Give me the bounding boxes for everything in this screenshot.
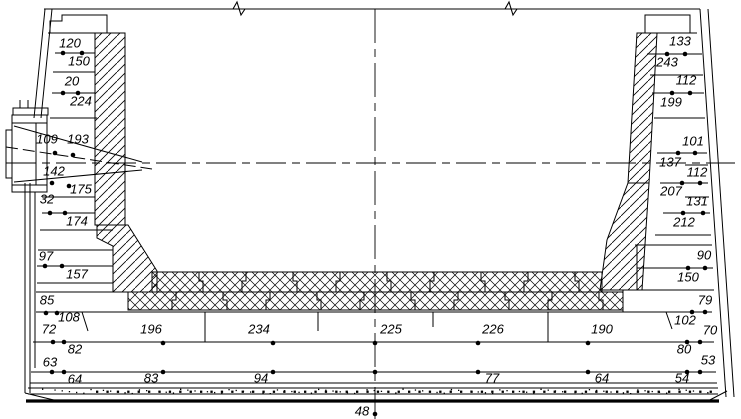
stipple-speck: [659, 392, 660, 393]
measurement-label: 97: [39, 248, 54, 263]
stipple-speck: [76, 392, 77, 393]
measurement-label: 83: [144, 370, 159, 385]
measurement-point-dot: [586, 341, 591, 346]
stipple-speck: [173, 392, 174, 393]
stipple-speck: [340, 391, 341, 392]
stipple-speck: [187, 390, 188, 391]
measurement-label: 72: [42, 321, 57, 336]
stipple-speck: [485, 392, 486, 393]
stipple-dot: [377, 391, 379, 393]
measurement-point-dot: [693, 151, 698, 156]
stipple-speck: [548, 390, 549, 391]
measurement-point-dot: [62, 370, 67, 375]
stipple-speck: [332, 390, 333, 391]
stipple-dot: [294, 391, 296, 393]
measurement-label: 199: [660, 94, 682, 109]
measurement-point-dot: [698, 340, 703, 345]
stipple-speck: [506, 390, 507, 391]
stipple-dot: [481, 391, 483, 393]
measurement-point-dot: [373, 370, 378, 375]
stipple-speck: [451, 389, 452, 390]
stipple-speck: [124, 392, 125, 393]
measurement-label: 224: [69, 93, 92, 108]
measurement-point-dot: [161, 370, 166, 375]
measurement-label: 137: [659, 154, 681, 169]
measurement-label: 108: [58, 309, 80, 324]
measurement-point-dot: [688, 91, 693, 96]
stipple-speck: [194, 390, 195, 391]
hearth-lower-course: [128, 292, 623, 310]
stipple-dot: [335, 391, 337, 393]
measurement-label: 226: [481, 321, 504, 336]
measurement-point-dot: [271, 341, 276, 346]
measurement-label: 243: [655, 54, 678, 69]
stipple-speck: [262, 392, 263, 393]
measurement-label: 53: [701, 352, 716, 367]
stipple-speck: [610, 391, 611, 392]
stipple-speck: [270, 393, 271, 394]
stipple-dot: [543, 391, 545, 393]
stipple-dot: [231, 391, 233, 393]
stipple-dot: [439, 391, 441, 393]
measurement-point-dot: [53, 151, 58, 156]
measurement-point-dot: [703, 310, 708, 315]
measurement-label: 174: [66, 213, 88, 228]
stipple-speck: [652, 391, 653, 392]
stipple-speck: [110, 391, 111, 392]
stipple-speck: [444, 393, 445, 394]
stipple-dot: [564, 391, 566, 393]
stipple-dot: [325, 391, 327, 393]
measurement-point-dot: [61, 91, 66, 96]
stipple-speck: [146, 390, 147, 391]
measurement-label: 196: [140, 321, 162, 336]
measurement-point-dot: [62, 340, 67, 345]
stipple-dot: [96, 391, 98, 393]
measurement-label: 193: [67, 131, 89, 146]
stipple-dot: [450, 391, 452, 393]
measurement-label: 112: [687, 164, 708, 179]
stipple-dot: [418, 391, 420, 393]
measurement-point-dot: [60, 264, 65, 269]
measurement-point-dot: [161, 341, 166, 346]
stipple-speck: [318, 389, 319, 390]
stipple-speck: [693, 390, 694, 391]
measurement-point-dot: [373, 341, 378, 346]
measurement-point-dot: [701, 211, 706, 216]
stipple-speck: [623, 392, 624, 393]
stipple-speck: [42, 389, 43, 390]
stipple-speck: [381, 391, 382, 392]
stipple-speck: [291, 391, 292, 392]
stipple-speck: [180, 389, 181, 390]
stipple-speck: [707, 392, 708, 393]
measurement-label: 63: [43, 354, 58, 369]
stipple-speck: [62, 390, 63, 391]
stipple-speck: [243, 391, 244, 392]
measurement-point-dot: [44, 311, 49, 316]
stipple-speck: [574, 392, 575, 393]
stipple-dot: [138, 391, 140, 393]
stipple-dot: [408, 391, 410, 393]
measurement-label: 54: [675, 370, 689, 385]
measurement-point-dot: [586, 370, 591, 375]
stipple-speck: [562, 391, 563, 392]
measurement-point-dot: [271, 370, 276, 375]
measurement-label: 85: [40, 292, 55, 307]
stipple-dot: [356, 391, 358, 393]
measurement-label: 80: [677, 341, 692, 356]
stipple-speck: [207, 391, 208, 392]
stipple-speck: [298, 392, 299, 393]
stipple-dot: [637, 391, 639, 393]
measurement-label: 48: [355, 403, 370, 418]
stipple-speck: [221, 393, 222, 394]
stipple-dot: [689, 391, 691, 393]
measurement-point-dot: [373, 412, 378, 417]
measurement-label: 102: [674, 312, 696, 327]
stipple-dot: [710, 391, 712, 393]
stipple-speck: [158, 391, 159, 392]
stipple-dot: [252, 391, 254, 393]
stipple-speck: [90, 389, 91, 390]
measurement-label: 150: [677, 269, 699, 284]
stipple-speck: [492, 393, 493, 394]
stipple-speck: [139, 389, 140, 390]
stipple-dot: [512, 391, 514, 393]
measurement-point-dot: [703, 266, 708, 271]
stipple-speck: [603, 391, 604, 392]
stipple-dot: [491, 391, 493, 393]
stipple-speck: [250, 391, 251, 392]
stipple-speck: [366, 389, 367, 390]
stipple-dot: [106, 391, 108, 393]
stipple-speck: [284, 390, 285, 391]
measurement-label: 133: [669, 33, 691, 48]
stipple-dot: [200, 391, 202, 393]
stipple-speck: [395, 392, 396, 393]
measurement-label: 109: [36, 131, 58, 146]
measurement-label: 112: [676, 72, 697, 87]
stipple-dot: [502, 391, 504, 393]
hearth-brick-courses: [128, 272, 623, 310]
stipple-speck: [54, 389, 55, 390]
stipple-speck: [388, 392, 389, 393]
stipple-speck: [596, 390, 597, 391]
measurement-label: 20: [64, 73, 80, 88]
stipple-speck: [69, 391, 70, 392]
refractory-lining-section-drawing: 1201502022410919314217532174971578510872…: [0, 0, 741, 419]
stipple-dot: [273, 391, 275, 393]
stipple-speck: [526, 392, 527, 393]
stipple-dot: [522, 391, 524, 393]
measurement-label: 190: [591, 321, 613, 336]
stipple-speck: [429, 391, 430, 392]
measurement-label: 157: [66, 266, 88, 281]
stipple-speck: [644, 390, 645, 391]
stipple-speck: [470, 391, 471, 392]
stipple-speck: [277, 389, 278, 390]
measurement-point-dot: [698, 181, 703, 186]
stipple-speck: [236, 390, 237, 391]
measurement-point-dot: [71, 153, 76, 158]
stipple-dot: [585, 391, 587, 393]
measurement-label: 79: [698, 292, 712, 307]
stipple-speck: [533, 392, 534, 393]
stipple-speck: [166, 392, 167, 393]
stipple-speck: [637, 389, 638, 390]
stipple-speck: [666, 393, 667, 394]
measurement-point-dot: [698, 370, 703, 375]
measurement-label: 212: [672, 214, 695, 229]
stipple-dot: [606, 391, 608, 393]
measurement-point-dot: [51, 340, 56, 345]
stipple-speck: [402, 389, 403, 390]
stipple-speck: [117, 391, 118, 392]
stipple-dot: [314, 391, 316, 393]
stipple-dot: [169, 391, 171, 393]
measurement-point-dot: [43, 264, 48, 269]
stipple-speck: [415, 389, 416, 390]
drawing-canvas: 1201502022410919314217532174971578510872…: [0, 0, 741, 419]
stipple-speck: [83, 393, 84, 394]
stipple-dot: [179, 391, 181, 393]
stipple-speck: [540, 389, 541, 390]
measurement-point-dot: [683, 52, 688, 57]
measurement-label: 82: [68, 341, 83, 356]
stipple-speck: [589, 389, 590, 390]
measurement-label: 64: [68, 371, 82, 386]
stipple-speck: [214, 392, 215, 393]
stipple-dot: [366, 391, 368, 393]
measurement-label: 150: [68, 53, 90, 68]
stipple-speck: [103, 390, 104, 391]
stipple-speck: [678, 389, 679, 390]
stipple-speck: [519, 391, 520, 392]
stipple-dot: [210, 391, 212, 393]
measurement-label: 207: [659, 183, 682, 198]
stipple-dot: [668, 391, 670, 393]
measurement-point-dot: [48, 211, 53, 216]
stipple-speck: [228, 389, 229, 390]
stipple-speck: [686, 390, 687, 391]
stipple-speck: [347, 392, 348, 393]
stipple-speck: [311, 393, 312, 394]
stipple-speck: [630, 393, 631, 394]
stipple-speck: [499, 389, 500, 390]
stipple-speck: [700, 391, 701, 392]
measurement-label: 70: [703, 322, 718, 337]
stipple-speck: [422, 390, 423, 391]
measurement-label: 142: [43, 163, 65, 178]
measurement-point-dot: [61, 51, 66, 56]
measurement-label: 90: [697, 247, 712, 262]
stipple-dot: [148, 391, 150, 393]
measurement-label: 175: [70, 181, 92, 196]
measurement-label: 101: [682, 133, 704, 148]
measurement-point-dot: [476, 341, 481, 346]
measurement-label: 64: [595, 370, 609, 385]
stipple-speck: [354, 393, 355, 394]
stipple-speck: [436, 392, 437, 393]
stipple-speck: [582, 393, 583, 394]
stipple-speck: [478, 391, 479, 392]
stipple-dot: [221, 391, 223, 393]
measurement-label: 131: [686, 193, 708, 208]
stipple-speck: [325, 390, 326, 391]
stipple-speck: [555, 390, 556, 391]
hearth-upper-course: [152, 272, 602, 292]
measurement-point-dot: [50, 181, 55, 186]
measurement-label: 225: [379, 321, 402, 336]
measurement-label: 94: [254, 370, 268, 385]
stipple-dot: [304, 391, 306, 393]
measurement-point-dot: [476, 370, 481, 375]
stipple-dot: [647, 391, 649, 393]
stipple-dot: [460, 391, 462, 393]
stipple-dot: [190, 391, 192, 393]
stipple-dot: [127, 391, 129, 393]
measurement-label: 120: [59, 35, 81, 50]
stipple-dot: [616, 391, 618, 393]
stipple-dot: [678, 391, 680, 393]
stipple-dot: [626, 391, 628, 393]
measurement-label: 32: [40, 191, 55, 206]
stipple-speck: [458, 390, 459, 391]
stipple-dot: [398, 391, 400, 393]
measurement-label: 77: [485, 370, 500, 385]
left-brick-column: [95, 33, 125, 225]
measurement-point-dot: [50, 370, 55, 375]
measurement-label: 234: [247, 321, 270, 336]
stipple-speck: [132, 393, 133, 394]
